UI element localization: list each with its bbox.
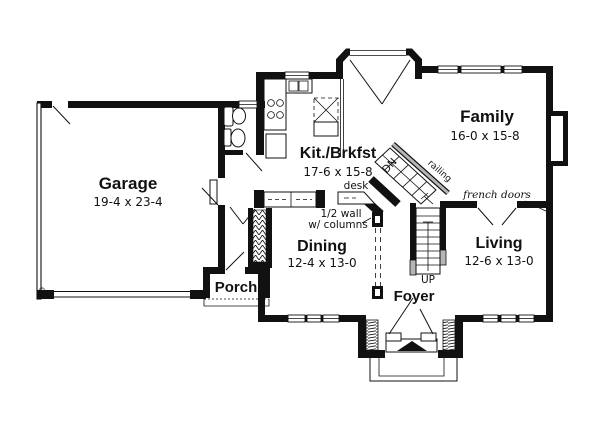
column bbox=[372, 286, 383, 299]
fireplace bbox=[546, 111, 568, 166]
foyer-label: Foyer bbox=[394, 288, 435, 305]
built-in-cabinet bbox=[254, 190, 325, 208]
garage-dims: 19-4 x 23-4 bbox=[93, 195, 162, 209]
floor-plan-svg: Garage 19-4 x 23-4 Kit./Brkfst 17-6 x 15… bbox=[0, 0, 600, 422]
kitchen-label: Kit./Brkfst bbox=[300, 145, 377, 162]
copyright-mark: © bbox=[38, 287, 47, 297]
window bbox=[307, 315, 321, 322]
front-door bbox=[386, 298, 437, 352]
powder-room bbox=[224, 107, 246, 147]
pantry-cabinet bbox=[314, 98, 338, 136]
garage-label: Garage bbox=[99, 174, 158, 193]
vanity-sink-icon bbox=[224, 107, 246, 126]
dining-label: Dining bbox=[297, 238, 347, 255]
living-label: Living bbox=[475, 235, 522, 252]
kitchen-dims: 17-6 x 15-8 bbox=[303, 165, 372, 179]
french-doors-label: french doors bbox=[462, 189, 531, 201]
window bbox=[285, 72, 309, 79]
desk-fixture bbox=[338, 192, 375, 204]
dining-dims: 12-4 x 13-0 bbox=[287, 256, 356, 270]
window bbox=[501, 315, 516, 322]
door-swings bbox=[53, 60, 516, 270]
refrigerator-icon bbox=[266, 134, 286, 158]
window bbox=[438, 66, 458, 73]
sidelight bbox=[366, 320, 378, 353]
window bbox=[288, 315, 305, 322]
window bbox=[323, 315, 339, 322]
window bbox=[483, 315, 498, 322]
half-wall-label2: w/ columns bbox=[308, 219, 368, 231]
railing-label: railing bbox=[425, 158, 453, 184]
family-label: Family bbox=[460, 107, 514, 126]
window bbox=[504, 66, 522, 73]
family-dims: 16-0 x 15-8 bbox=[450, 129, 519, 143]
toilet-icon bbox=[224, 129, 245, 147]
living-dims: 12-6 x 13-0 bbox=[464, 254, 533, 268]
porch-label: Porch bbox=[215, 279, 258, 296]
garage-door bbox=[54, 292, 192, 298]
desk-label: desk bbox=[344, 180, 370, 192]
front-entry bbox=[366, 298, 457, 381]
coat-closet bbox=[248, 208, 272, 268]
window bbox=[239, 101, 257, 108]
garage-entry-door bbox=[202, 180, 218, 205]
floor-plan: Garage 19-4 x 23-4 Kit./Brkfst 17-6 x 15… bbox=[0, 0, 600, 422]
range-icon bbox=[268, 100, 284, 119]
sidelight bbox=[443, 320, 455, 353]
sink-icon bbox=[286, 79, 312, 93]
stairs-up bbox=[410, 203, 446, 275]
stoop bbox=[370, 355, 457, 381]
column bbox=[372, 212, 383, 227]
window bbox=[461, 66, 501, 73]
up-label: UP bbox=[421, 274, 435, 286]
window bbox=[519, 315, 534, 322]
